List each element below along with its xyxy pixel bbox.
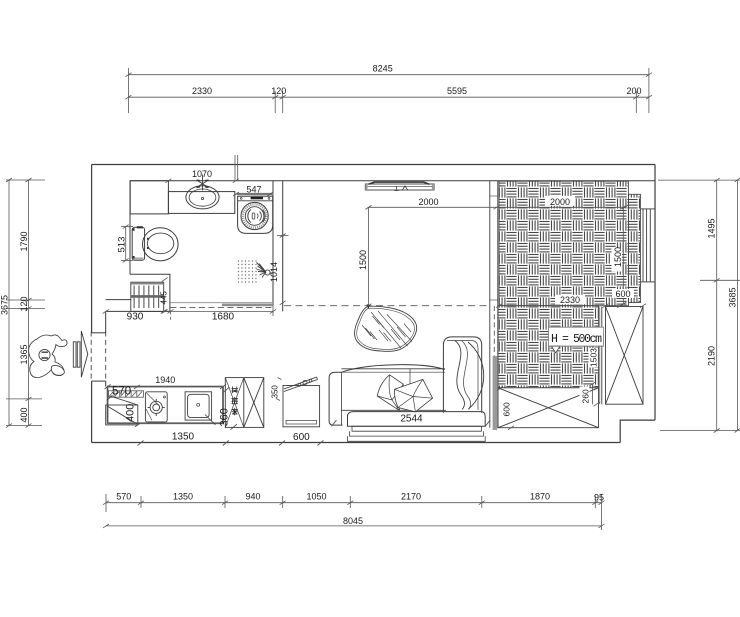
svg-text:2000: 2000 (550, 197, 570, 207)
svg-text:2170: 2170 (401, 492, 421, 502)
svg-text:570: 570 (116, 492, 131, 502)
svg-text:930: 930 (127, 312, 144, 323)
svg-text:940: 940 (245, 492, 260, 502)
svg-text:1680: 1680 (212, 312, 235, 323)
svg-text:1365: 1365 (19, 344, 29, 364)
svg-text:1790: 1790 (19, 231, 29, 251)
svg-text:400: 400 (125, 404, 137, 422)
svg-text:1350: 1350 (173, 492, 193, 502)
svg-text:H = 500cm: H = 500cm (551, 333, 602, 346)
svg-text:1014: 1014 (269, 262, 279, 282)
svg-text:445: 445 (160, 291, 169, 305)
svg-text:600: 600 (502, 402, 512, 416)
svg-text:1500: 1500 (613, 247, 623, 267)
svg-text:1500: 1500 (358, 250, 368, 270)
svg-text:1070: 1070 (192, 169, 212, 179)
svg-text:95: 95 (594, 493, 604, 503)
svg-text:350: 350 (271, 385, 280, 399)
svg-text:600: 600 (293, 432, 310, 443)
svg-text:2330: 2330 (192, 86, 212, 96)
svg-text:513: 513 (116, 237, 127, 253)
svg-text:2330: 2330 (560, 295, 580, 305)
svg-text:1350: 1350 (172, 432, 195, 443)
svg-text:3675: 3675 (0, 295, 10, 315)
svg-text:2190: 2190 (707, 346, 717, 366)
svg-text:600: 600 (615, 289, 630, 299)
svg-text:8245: 8245 (373, 64, 393, 74)
svg-text:400: 400 (19, 407, 29, 422)
svg-text:260: 260 (581, 389, 591, 403)
svg-text:8045: 8045 (343, 516, 363, 526)
svg-text:5595: 5595 (447, 86, 467, 96)
svg-text:2000: 2000 (418, 197, 438, 207)
svg-text:2544: 2544 (400, 414, 423, 425)
svg-text:1870: 1870 (530, 492, 550, 502)
svg-text:120: 120 (19, 296, 29, 311)
svg-text:120: 120 (271, 86, 286, 96)
svg-text:1503: 1503 (589, 348, 599, 367)
svg-text:570: 570 (112, 386, 131, 398)
svg-text:547: 547 (246, 185, 261, 195)
svg-text:1050: 1050 (306, 492, 326, 502)
svg-text:1495: 1495 (707, 218, 717, 238)
svg-text:200: 200 (626, 86, 641, 96)
svg-text:1940: 1940 (155, 375, 175, 385)
svg-text:3685: 3685 (728, 287, 738, 307)
